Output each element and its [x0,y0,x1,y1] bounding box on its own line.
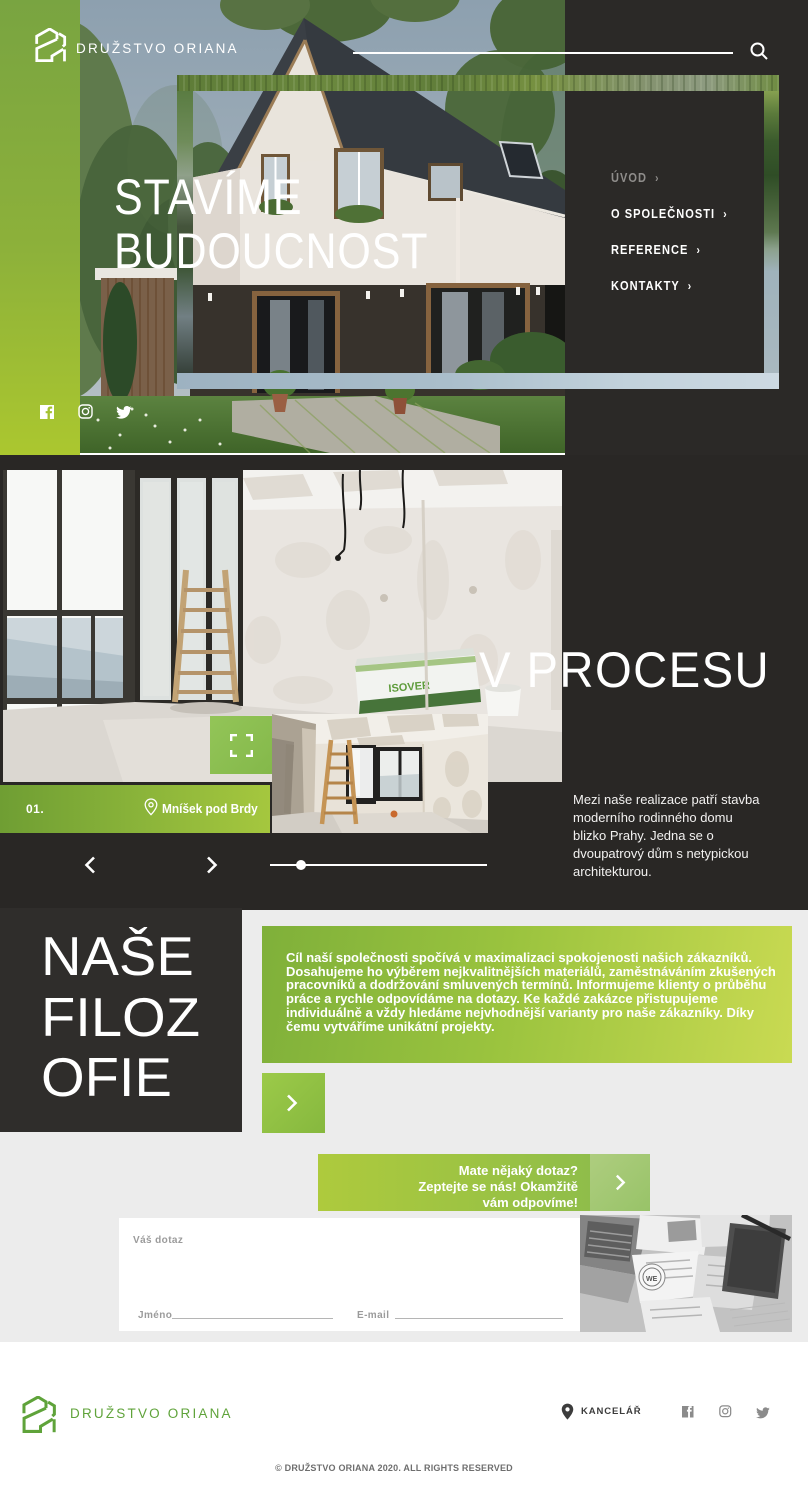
svg-text:WE: WE [646,1276,658,1283]
